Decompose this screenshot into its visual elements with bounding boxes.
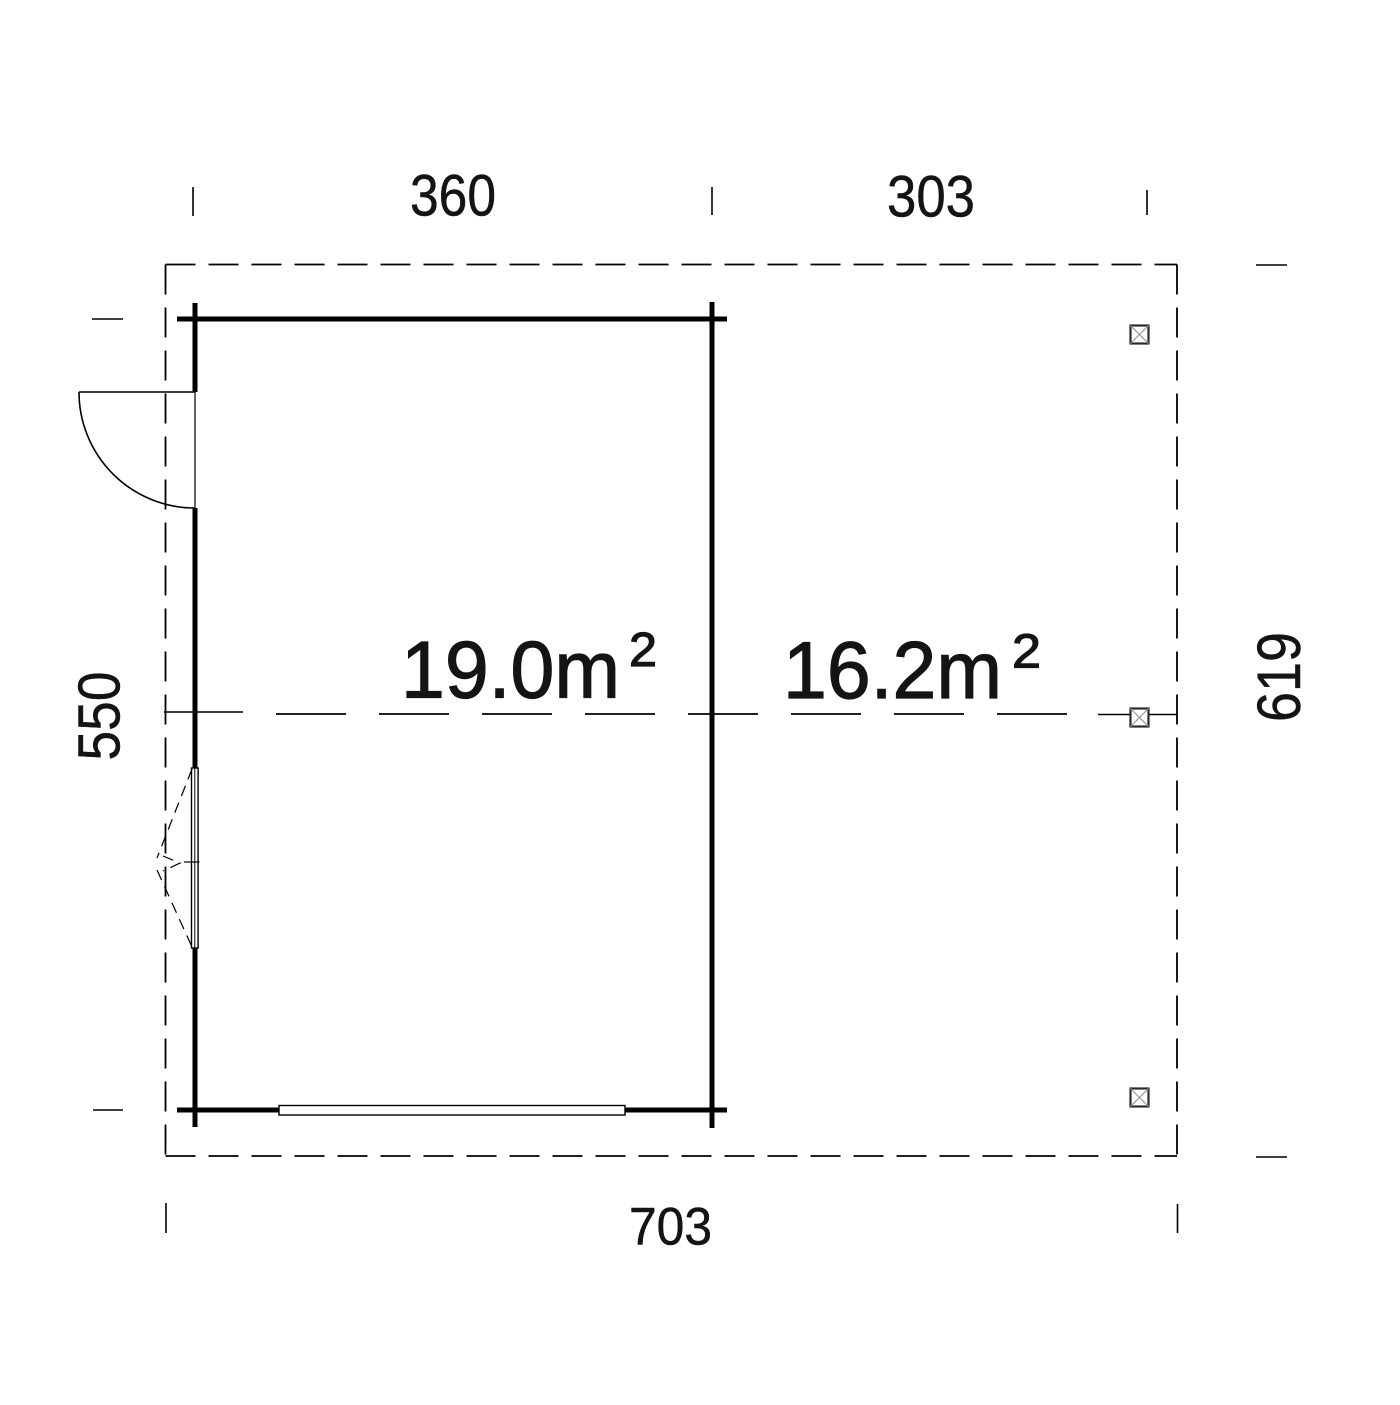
svg-text:703: 703 [629, 1198, 712, 1257]
svg-text:16.2m: 16.2m [783, 626, 1002, 716]
svg-text:2: 2 [629, 624, 657, 677]
svg-text:19.0m: 19.0m [401, 626, 620, 716]
svg-text:360: 360 [410, 164, 496, 229]
svg-text:2: 2 [1012, 626, 1041, 679]
svg-text:303: 303 [887, 165, 975, 230]
svg-text:619: 619 [1245, 632, 1313, 722]
svg-text:550: 550 [66, 672, 132, 761]
